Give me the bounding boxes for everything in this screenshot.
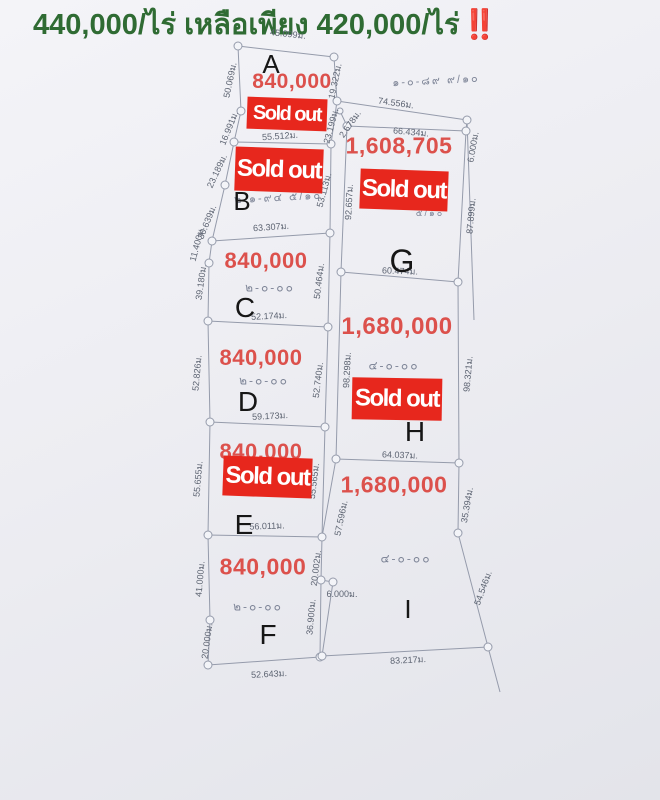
area-notation-I: ๔-๐-๐๐ — [380, 550, 431, 569]
plot-f-price: 840,000 — [220, 554, 307, 581]
plot-h-soldout-banner: Sold out — [352, 377, 443, 421]
plot-c-letter: C — [235, 294, 255, 322]
plot-e-soldout-banner: Sold out — [222, 455, 312, 498]
measurement-label: 56.011ม. — [249, 518, 285, 533]
measurement-label: 64.037ม. — [382, 447, 418, 462]
area-notation-H: ๔-๐-๐๐ — [368, 357, 419, 376]
plot-e-letter: E — [235, 511, 254, 539]
plot-b-letter: B — [233, 188, 250, 214]
measurement-label: 52.643ม. — [251, 666, 288, 682]
plot-a-soldout-banner: Sold out — [246, 97, 327, 132]
measurement-label: 63.307ม. — [253, 219, 290, 235]
measurement-label: 92.657ม. — [341, 184, 357, 221]
plot-g-price: 1,608,705 — [346, 133, 453, 160]
measurement-label: 52.174ม. — [251, 308, 288, 324]
land-plot-map-photo: 440,000/ไร่ เหลือเพียง 420,000/ไร่‼️ — [0, 0, 660, 800]
plot-g-soldout-banner: Sold out — [359, 168, 448, 211]
plot-h-price: 1,680,000 — [341, 313, 452, 341]
measurement-label: 83.217ม. — [390, 652, 427, 668]
plot-f-letter: F — [259, 621, 276, 649]
measurement-label: 6.000ม. — [327, 587, 358, 601]
plot-d-price: 840,000 — [219, 345, 302, 371]
plot-d-letter: D — [238, 388, 258, 416]
plot-map: 45.099ม.50.069ม.16.991ม.23.189ม.30.639ม.… — [0, 0, 660, 800]
plot-h-letter: H — [405, 418, 425, 446]
plot-i-letter: I — [404, 596, 411, 622]
plot-c-price: 840,000 — [224, 248, 307, 274]
plot-g-letter: G — [390, 245, 415, 277]
plot-a-letter: A — [262, 51, 279, 77]
area-notation-F: ๒-๐-๐๐ — [233, 598, 283, 617]
plot-i-price: 1,680,000 — [341, 472, 448, 499]
